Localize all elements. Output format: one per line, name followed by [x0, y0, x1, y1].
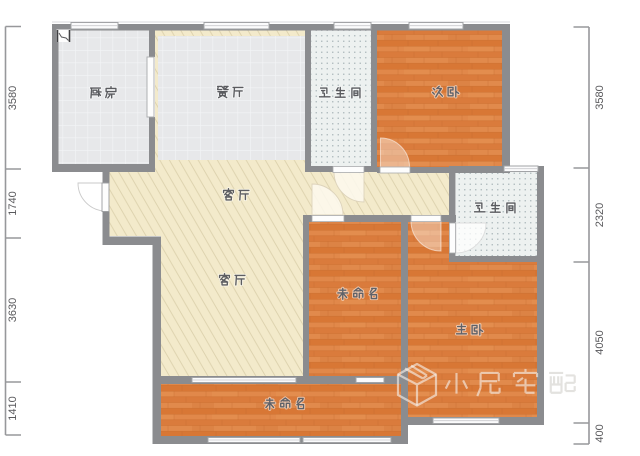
svg-text:3630: 3630: [7, 298, 19, 322]
svg-text:400: 400: [594, 424, 606, 442]
svg-text:3580: 3580: [594, 85, 606, 109]
svg-text:1410: 1410: [7, 396, 19, 420]
svg-text:1740: 1740: [7, 191, 19, 215]
svg-text:2320: 2320: [594, 203, 606, 227]
svg-text:3580: 3580: [7, 86, 19, 110]
svg-text:4050: 4050: [594, 330, 606, 354]
